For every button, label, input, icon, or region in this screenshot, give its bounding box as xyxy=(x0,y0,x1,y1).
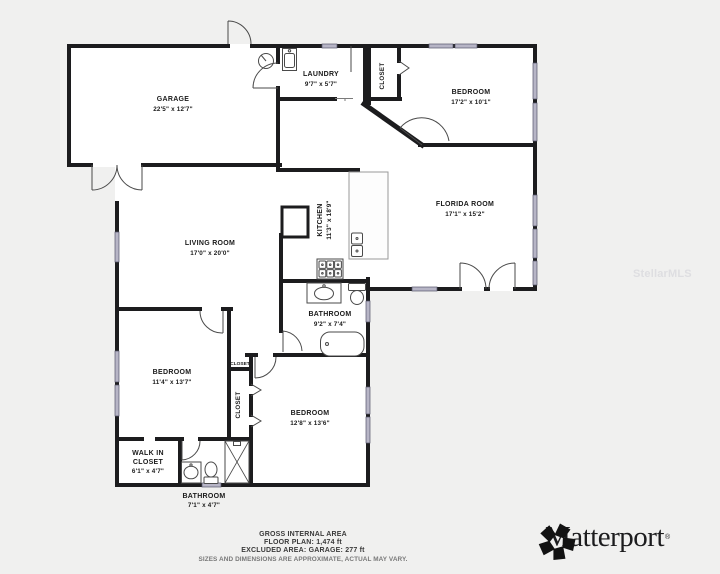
garage-label: GARAGE xyxy=(157,96,190,103)
bathroom-main-label: BATHROOM xyxy=(308,311,351,318)
bathroom-south-dims: 7'1" x 4'7" xyxy=(188,502,220,509)
matterport-icon xyxy=(536,521,578,563)
kitchen-dims: 11'3" x 18'9" xyxy=(326,200,333,239)
living-room-label: LIVING ROOM xyxy=(185,240,235,247)
area-summary: GROSS INTERNAL AREA FLOOR PLAN: 1,474 ft… xyxy=(158,531,448,564)
living-room-dims: 17'0" x 20'0" xyxy=(190,250,230,257)
garage-dims: 22'5" x 12'7" xyxy=(153,106,193,113)
stove-icon xyxy=(317,259,343,279)
laundry-sink-icon xyxy=(283,49,297,71)
bedroom-ne-label: BEDROOM xyxy=(452,89,491,96)
bedroom-west-dims: 11'4" x 13'7" xyxy=(152,379,191,386)
closet-ne-label: CLOSET xyxy=(379,63,386,90)
area-summary-title: GROSS INTERNAL AREA xyxy=(158,531,448,539)
bedroom-west-label: BEDROOM xyxy=(153,369,192,376)
florida-room-label: FLORIDA ROOM xyxy=(436,201,494,208)
bedroom-south-label: BEDROOM xyxy=(291,410,330,417)
kitchen-counter xyxy=(349,172,388,259)
florida-room-dims: 17'1" x 15'2" xyxy=(445,211,485,218)
bedroom-south-dims: 12'8" x 13'6" xyxy=(290,420,330,427)
bathroom-main-dims: 9'2" x 7'4" xyxy=(314,321,346,328)
bathroom-main-toilet xyxy=(349,284,366,305)
registered-mark: ® xyxy=(665,534,670,541)
bedroom-ne-dims: 17'2" x 10'1" xyxy=(451,99,491,106)
disclaimer: SIZES AND DIMENSIONS ARE APPROXIMATE, AC… xyxy=(158,556,448,564)
garage-entry-door xyxy=(228,21,251,44)
closet-hall-label: CLOSET xyxy=(230,361,250,367)
bathtub-icon xyxy=(321,332,365,356)
walk-in-closet-label-2: CLOSET xyxy=(133,459,164,466)
watermark: StellarMLS xyxy=(633,268,692,280)
shower-icon xyxy=(225,441,249,483)
kitchen-label: KITCHEN xyxy=(317,203,324,236)
floor-plan-page: GARAGE 22'5" x 12'7" LAUNDRY 9'7" x 5'7"… xyxy=(0,0,720,574)
excluded-area: EXCLUDED AREA: GARAGE: 277 ft xyxy=(158,547,448,555)
matterport-logo: Matterport® xyxy=(536,521,670,554)
closet-long-label: CLOSET xyxy=(235,392,242,419)
laundry-label: LAUNDRY xyxy=(303,71,339,78)
kitchen-island xyxy=(282,207,308,237)
floor-plan-area: FLOOR PLAN: 1,474 ft xyxy=(158,539,448,547)
laundry-dims: 9'7" x 5'7" xyxy=(305,81,337,88)
walk-in-closet-label-1: WALK IN xyxy=(132,450,164,457)
floor-plan: GARAGE 22'5" x 12'7" LAUNDRY 9'7" x 5'7"… xyxy=(0,0,720,574)
bathroom-main-vanity xyxy=(307,283,341,303)
bathroom-south-label: BATHROOM xyxy=(182,493,225,500)
walk-in-closet-dims: 6'1" x 4'7" xyxy=(132,468,164,475)
bathroom-south-sink xyxy=(182,462,202,483)
bathroom-south-toilet xyxy=(204,462,218,484)
